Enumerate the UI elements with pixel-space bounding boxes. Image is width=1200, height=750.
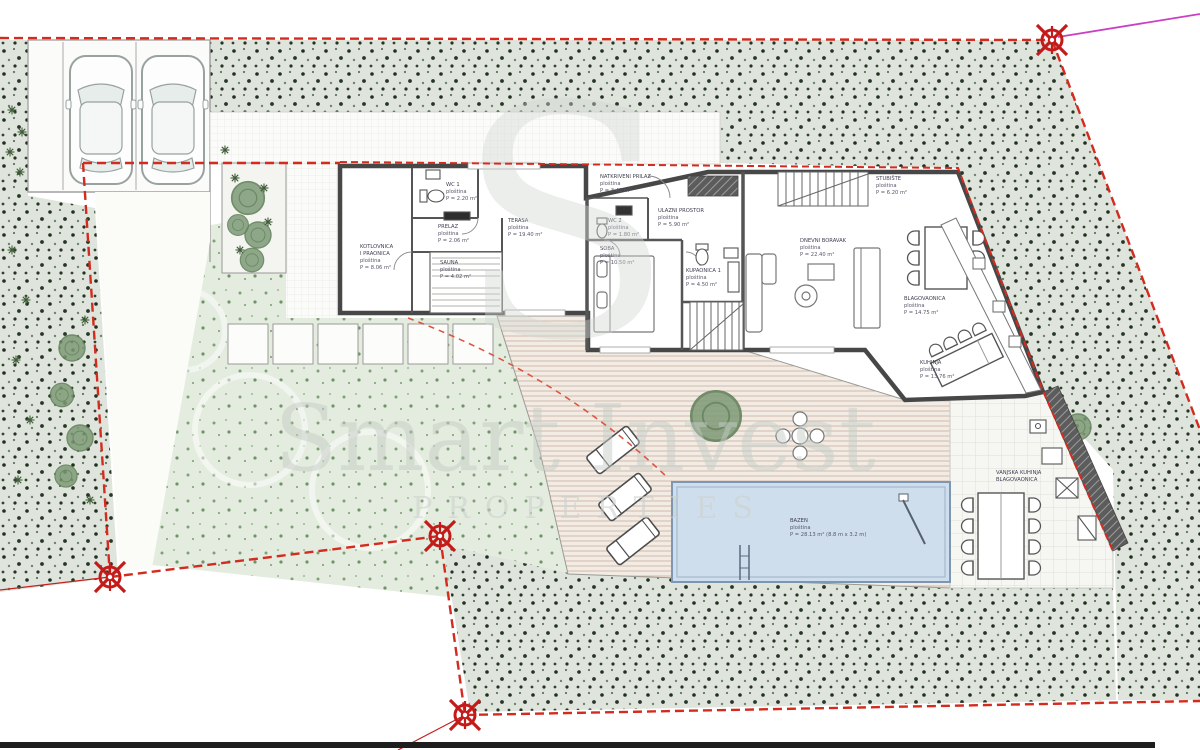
car-2 xyxy=(138,56,208,184)
label-kuhinja-sub: ploština xyxy=(920,366,941,373)
label-kotlovnica-area: P = 8.06 m² xyxy=(360,265,391,271)
watermark-line1: Smart Invest xyxy=(274,385,876,492)
watermark-line2: PROPERTIES xyxy=(412,491,768,526)
label-kuhinja-area: P = 13.76 m² xyxy=(920,374,954,380)
label-bazen-sub: ploština xyxy=(790,524,811,531)
stairs-right xyxy=(778,172,868,206)
label-vanjska-2: BLAGOVAONICA xyxy=(996,477,1038,483)
label-kupaonica-sub: ploština xyxy=(686,274,707,281)
survey-marker-w xyxy=(95,562,125,592)
label-bazen-area: P = 28.13 m² (8.8 m x 3.2 m) xyxy=(790,532,866,538)
label-dnevni-area: P = 22.40 m² xyxy=(800,252,834,258)
stairs-middle xyxy=(690,302,743,350)
watermark-monogram: S xyxy=(455,39,674,411)
label-stubiste: STUBIŠTE xyxy=(876,175,901,182)
survey-marker-s xyxy=(450,700,480,730)
label-kotlovnica: KOTLOVNICA xyxy=(360,244,394,250)
bottom-border-bar xyxy=(0,742,1155,748)
label-stubiste-sub: ploština xyxy=(876,182,897,189)
label-kupaonica-area: P = 4.50 m² xyxy=(686,282,717,288)
car-1 xyxy=(66,56,136,184)
label-blagovaonica-sub: ploština xyxy=(904,302,925,309)
site-plan-image: KOTLOVNICA I PRAONICA ploština P = 8.06 … xyxy=(0,0,1200,750)
label-kupaonica: KUPAONICA 1 xyxy=(686,268,721,274)
survey-marker-ne xyxy=(1037,25,1067,55)
planter xyxy=(222,163,286,273)
site-plan-svg: KOTLOVNICA I PRAONICA ploština P = 8.06 … xyxy=(0,0,1200,750)
survey-marker-mid xyxy=(425,521,455,551)
label-dnevni-sub: ploština xyxy=(800,244,821,251)
side-walkway xyxy=(286,164,340,318)
label-dnevni: DNEVNI BORAVAK xyxy=(800,238,847,244)
label-stubiste-area: P = 6.20 m² xyxy=(876,190,907,196)
label-blagovaonica-area: P = 14.75 m² xyxy=(904,310,938,316)
label-vanjska: VANJSKA KUHINJA xyxy=(996,470,1042,476)
label-bazen: BAZEN xyxy=(790,518,808,524)
label-kotlovnica-2: I PRAONICA xyxy=(360,251,390,257)
label-blagovaonica: BLAGOVAONICA xyxy=(904,296,946,302)
label-kotlovnica-sub: ploština xyxy=(360,257,381,264)
label-kuhinja: KUHINJA xyxy=(920,360,942,366)
entry-wall-pier xyxy=(688,176,738,196)
